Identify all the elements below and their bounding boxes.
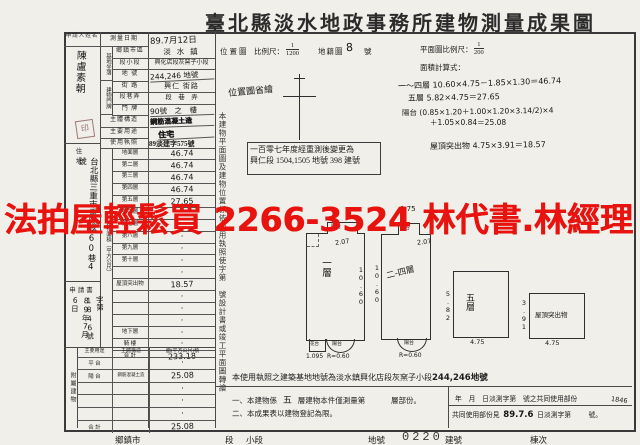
annex-row-structure [113,421,150,433]
map-scale-denominator: 1200 [286,50,299,57]
floor-row-value: · [149,327,215,338]
floorplan-roof-name: 屋頂突出物 [535,309,568,319]
calc-line-4: ＋1.05×0.84＝25.08 [430,117,506,128]
floorplan-1f-right-dim: 10.60 [357,266,365,292]
annex-row: · [77,408,215,421]
annex-row: 陽 台鋼筋混凝土造25.08 [77,370,215,383]
annex-row-usage [77,395,113,407]
annex-row-structure [113,395,150,407]
footer-lot-label: 地號 [368,434,385,445]
floorplan-1f-balcony-label: 陽台 [332,340,342,347]
floor-row: · [112,291,215,303]
annex-row-usage [77,383,113,395]
license-site-line: 本使用執照之建築基地地號為淡水鎮興化店段灰窯子小段244,246地號 [232,371,488,383]
floor-row: 第三層46.74 [112,172,215,184]
floorplan-roof-left-dim: 3.91 [520,299,528,323]
floorplan-5f-name: 五層 [463,293,476,319]
plan-scale-label: 平面圖比例尺： [420,44,473,55]
floor-row: 地下層· [112,327,215,339]
annex-row-area: · [150,357,215,369]
plan-scale-numerator: 1 [474,41,484,49]
door-group-label: 建物門牌 [100,81,112,115]
annex-header-area: 面(平方公尺)積 [150,347,215,357]
floor-row: 第十層· [112,255,215,267]
map-scale-label: 比例尺： [254,46,284,57]
note-line-1: 一、本建物係 五 層建物本件僅測量第 層部份。 [232,393,421,406]
footer-subsection: 小段 [246,434,263,445]
calc-line-2: 五層 5.82×4.75＝27.65 [408,91,500,104]
common-use-date-handwritten: 89.7.6 [503,410,533,420]
floor-row-value: 46.74 [149,147,215,160]
divider [448,405,632,406]
scanned-survey-document: 臺北縣淡水地政事務所建物測量成果圖 申請人姓名 測量日期 89.7月12日 陳盧… [0,0,640,445]
license-site-text: 本使用執照之建築基地地號為淡水鎮興化店段灰窯子小段 [232,373,432,382]
floorplan-2-4f-left-dim: 10.60 [373,264,381,290]
resurvey-note-line1: 一百零七年度經重測後變更為 [250,144,378,155]
license-site-lots: 244,246地號 [432,373,488,383]
divider [64,281,100,282]
plan-scale-denominator: 200 [474,49,484,56]
annex-row-usage: 平 台 [77,357,113,369]
floor-row-label [112,267,149,278]
floor-row-value: · [149,315,215,326]
floor-row: 第九層· [112,244,215,256]
red-watermark-text: 法拍屋輕鬆買 2266-3524 林代書.林經理 [4,193,633,241]
annex-row-area: · [150,383,215,395]
annex-row: 合 計25.08 [77,421,215,433]
annex-row-structure: 鋼筋混凝土造 [113,370,150,382]
floorplan-1f-planter-dim: 1.095 [306,353,323,360]
note1-prefix: 一、本建物係 [232,396,277,405]
floorplan-roof-bottom-dim: 4.75 [545,339,559,347]
floor-area-side-label: 建物面積（平方公尺） [101,150,112,344]
floor-row-value: 46.74 [149,171,215,184]
annex-row-area: 25.08 [150,369,215,383]
floor-row-label [112,303,149,314]
road-sketch-tick [294,78,305,79]
floor-row-label: 屋頂突出物 [112,279,149,290]
floorplan-5f-rect [453,271,509,338]
common-use-middle: 日淡測字第 [537,412,571,419]
floorplan-2-4f-balcony-label: 陽台 [404,339,414,346]
floorplan-1f-planter-label: 花台 [310,341,319,347]
calc-line-5: 屋頂突出物 4.75×3.91＝18.57 [430,139,546,152]
footer-building-label: 建號 [445,434,462,445]
note1-middle: 層建物本件僅測量第 [298,396,366,405]
footer-unit-label: 棟次 [530,434,547,445]
applicant-seal-stamp: 印 [75,119,95,139]
floor-row: 地面層46.74 [112,148,215,160]
floor-area-table: 地面層46.74第二層46.74第三層46.74第四層46.74第五層27.65… [112,148,215,345]
annex-side-label: 附屬建物 [65,352,77,424]
floor-row-value: 46.74 [149,159,215,172]
common-use-line2: 共同使用部份見 89.7.6 日淡測字第 號。 [452,409,636,420]
floor-row: 第二層46.74 [112,160,215,172]
floor-row-value: · [149,255,215,266]
annex-row-structure [113,383,150,395]
area-calc-label: 面積計算式： [420,62,465,73]
floor-row-value: · [149,303,215,314]
note-line-2: 二、本成果表以建物登記為限。 [232,408,337,419]
annex-row-usage: 合 計 [77,421,113,433]
common-use-line1: 年 月 日淡測字第 號之共同使用部份 [455,393,577,403]
annex-row-area: 25.08 [150,420,215,434]
annex-row: 平 台· [77,357,215,370]
footer-township: 鄉鎮市 [115,434,141,445]
floor-row-value: 18.57 [149,278,215,291]
application-label: 申請書 [66,284,98,294]
floor-row-label: 第三層 [112,172,149,183]
floor-row-value: · [149,244,215,255]
site-group-label: 基地坐落 [100,47,112,81]
floorplan-5f-bottom-dim: 4.75 [470,338,484,346]
map-scale-fraction: 1 1200 [286,42,299,57]
map-scale-numerator: 1 [286,42,299,50]
side-caption: 本建物平面圖及建物位置係依使用執照使字第 號設計書或竣工平面圖轉繪 [217,112,228,396]
floor-row: · [112,315,215,327]
annex-row-area: · [150,408,215,420]
divider [216,386,632,387]
resurvey-note-box: 一百零七年度經重測後變更為 興仁段 1504,1505 地號 398 建號 [247,142,381,175]
floorplan-1f-name: 一層 [318,258,332,288]
annex-row: · [77,383,215,396]
annex-header-usage: 主要用途 [77,347,113,357]
floorplan-5f-left-dim: 5.82 [444,290,452,314]
annex-row-usage: 陽 台 [77,370,113,382]
location-map-label: 位置圖 [220,46,249,57]
floorplan-2-4f-rect [381,234,431,340]
annex-header-structure: 主體構造 [113,347,150,357]
road-sketch-vertical [299,74,300,140]
road-sketch-cross [283,96,316,97]
floor-row-label: 地下層 [112,327,149,338]
floor-row-label [112,291,149,302]
note1-suffix: 層部份。 [391,396,421,405]
footer-lot-stamp: 0220 [402,430,443,444]
footer-section: 段 [225,434,234,445]
floor-row-value: · [149,267,215,278]
floor-row-label: 第十層 [112,255,149,266]
floorplan-1f-balcony-dim: R=0.60 [327,353,350,360]
survey-date-label: 測量日期 [100,32,148,47]
floor-row-label: 地面層 [112,148,149,159]
note1-floors-handwritten: 五 [283,396,292,406]
resurvey-note-line2: 興仁段 1504,1505 地號 398 建號 [250,155,378,166]
annex-row: · [77,395,215,408]
plan-scale-fraction: 1 200 [474,41,484,56]
annex-row-usage [77,408,113,420]
floor-row-value: · [149,291,215,302]
applicant-name-label: 申請人姓名 [64,33,100,47]
cadastral-sheet-suffix: 號 [364,46,372,57]
floorplan-2-4f-balcony-dim: R=0.60 [399,352,422,359]
floor-row-label [112,315,149,326]
annex-row-structure [113,408,150,420]
cadastral-map-label: 地籍圖 [318,46,344,57]
annex-row-structure [113,357,150,369]
annex-table: 平 台·陽 台鋼筋混凝土造25.08···合 計25.08 [77,357,215,428]
cadastral-sheet-number: 8 [346,41,354,54]
floor-row-label: 第九層 [112,244,149,255]
divider [64,143,100,144]
survey-date-value: 89.7月12日 [150,33,197,47]
common-use-suffix: 號。 [589,412,603,419]
lane-value: 段 巷 弄 [148,92,215,105]
floor-row: 屋頂突出物18.57 [112,279,215,291]
floor-row-label: 第二層 [112,160,149,171]
common-use-prefix: 共同使用部份見 [452,412,500,419]
annex-row-area: · [150,395,215,407]
divider [448,386,449,428]
floor-row: · [112,303,215,315]
